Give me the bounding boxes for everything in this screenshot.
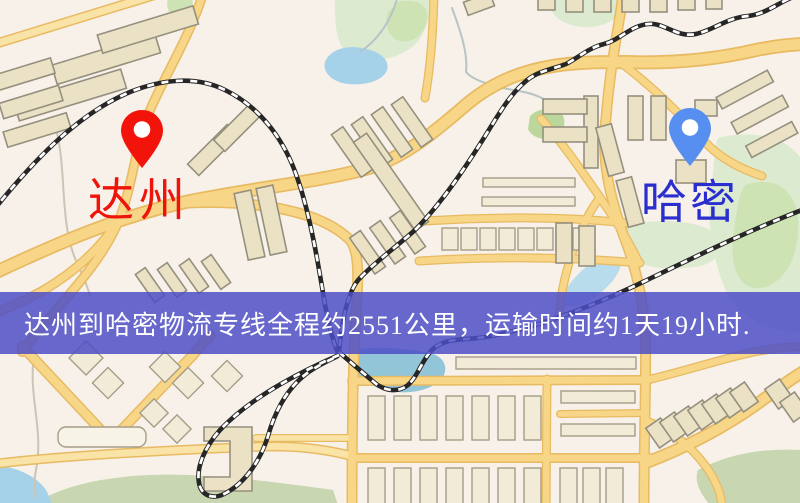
route-info-text: 达州到哈密物流专线全程约2551公里，运输时间约1天19小时. [0,305,751,342]
origin-city-label: 达州 [88,178,190,224]
destination-pin[interactable] [669,108,711,166]
destination-city-label: 哈密 [641,180,739,226]
map-screenshot: 达州 哈密 达州到哈密物流专线全程约2551公里，运输时间约1天19小时. [0,0,800,503]
origin-pin[interactable] [121,110,163,168]
route-info-banner: 达州到哈密物流专线全程约2551公里，运输时间约1天19小时. [0,292,800,354]
pin-hole [682,119,699,136]
c-shaped-building [204,427,252,491]
map-canvas [0,0,800,503]
red-map-pin-icon[interactable] [121,110,163,168]
blue-map-pin-icon[interactable] [669,108,711,166]
pin-hole [134,121,151,138]
water-bottom-left [0,466,52,503]
